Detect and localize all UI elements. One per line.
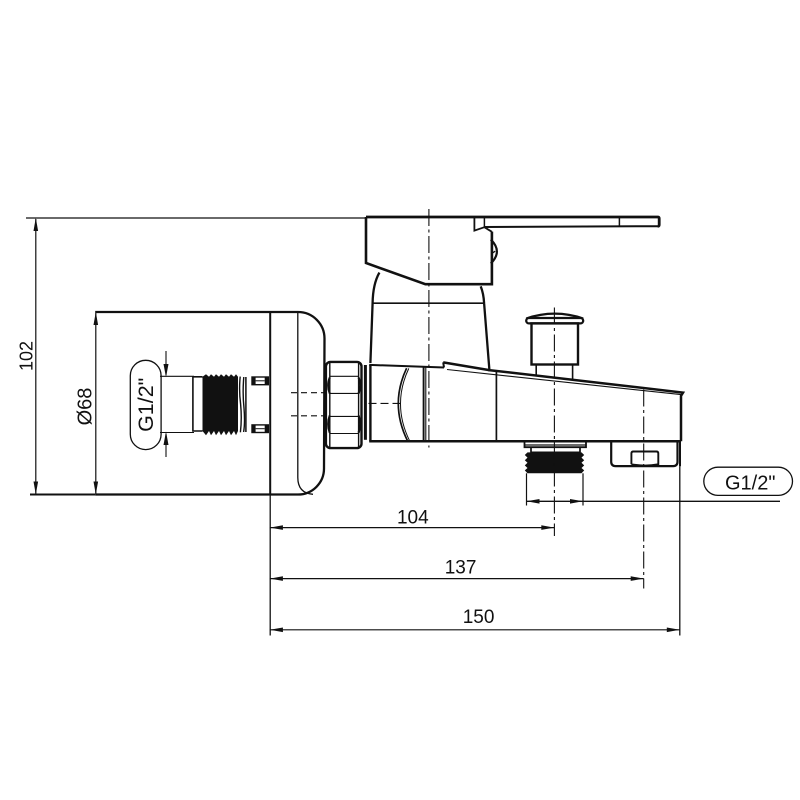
svg-text:G1/2": G1/2" [725, 472, 775, 494]
svg-text:137: 137 [445, 558, 477, 579]
svg-text:Ø68: Ø68 [75, 388, 97, 426]
svg-text:G1/2": G1/2" [134, 378, 158, 432]
svg-text:150: 150 [463, 607, 495, 628]
svg-text:102: 102 [17, 341, 37, 371]
svg-text:104: 104 [397, 507, 429, 528]
